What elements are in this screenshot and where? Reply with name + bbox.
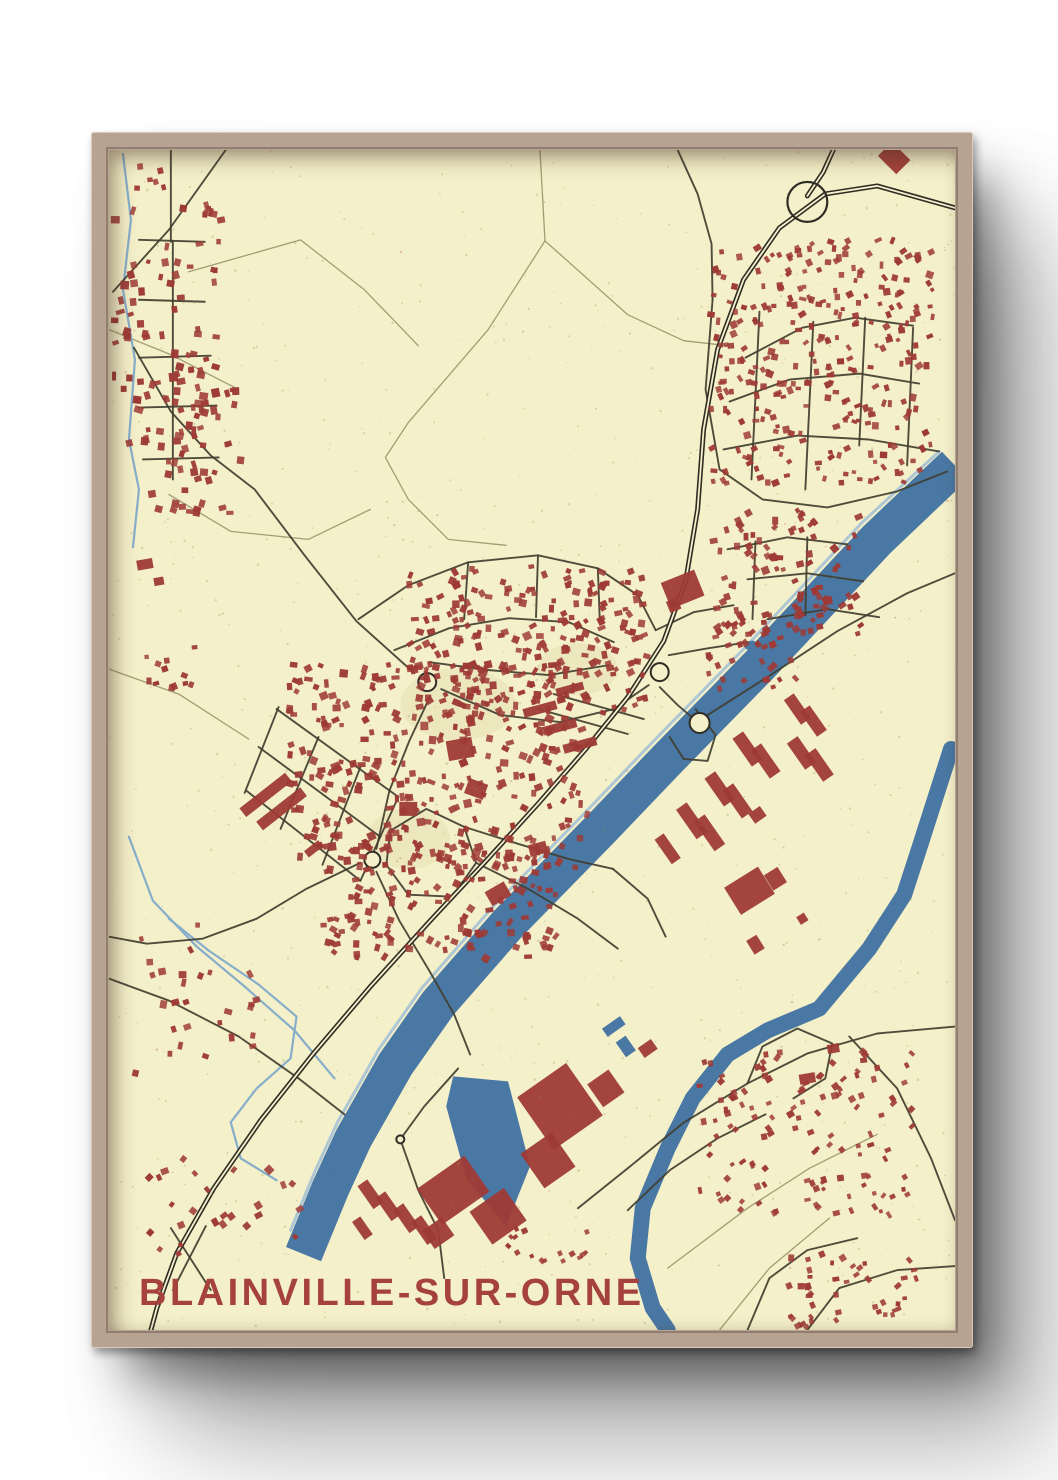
city-map (109, 150, 955, 1330)
map-poster: BLAINVILLE-SUR-ORNE (109, 150, 955, 1330)
wall-background: BLAINVILLE-SUR-ORNE (0, 0, 1058, 1480)
poster-frame: BLAINVILLE-SUR-ORNE (91, 132, 973, 1348)
poster-title: BLAINVILLE-SUR-ORNE (139, 1272, 645, 1315)
